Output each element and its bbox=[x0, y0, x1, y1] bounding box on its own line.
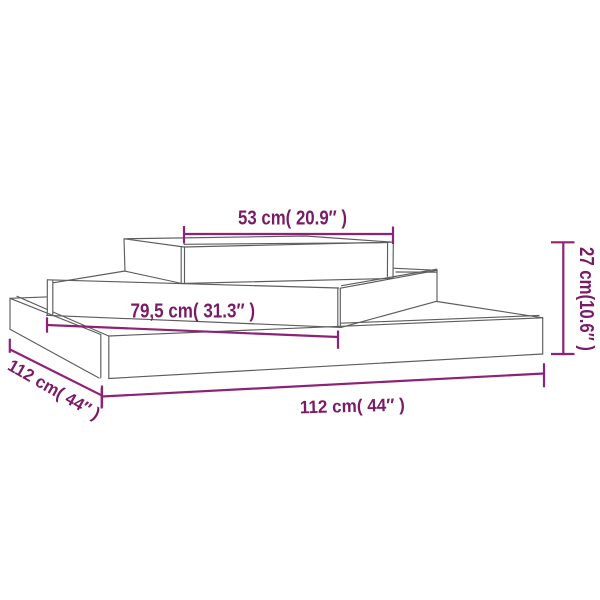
svg-text:53 cm( 20.9″ ): 53 cm( 20.9″ ) bbox=[238, 208, 347, 230]
svg-text:112 cm( 44″ ): 112 cm( 44″ ) bbox=[300, 395, 405, 418]
svg-text:79,5 cm( 31.3″ ): 79,5 cm( 31.3″ ) bbox=[131, 301, 256, 323]
svg-text:27 cm(10.6″ ): 27 cm(10.6″ ) bbox=[575, 247, 597, 351]
